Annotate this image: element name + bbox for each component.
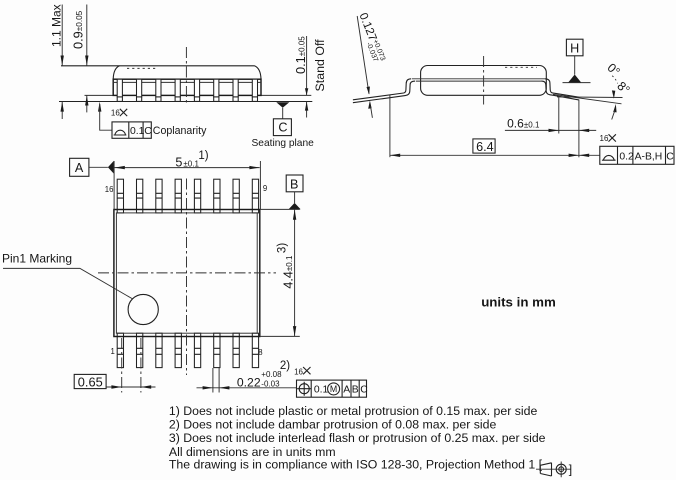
- svg-text:-0.03: -0.03: [261, 379, 280, 388]
- svg-text:6.4: 6.4: [476, 140, 494, 154]
- svg-text:B: B: [352, 385, 359, 396]
- svg-text:0.2: 0.2: [619, 151, 634, 162]
- svg-text:0.1: 0.1: [314, 385, 329, 396]
- svg-text:0.65: 0.65: [78, 374, 103, 389]
- svg-text:Stand Off: Stand Off: [313, 39, 327, 92]
- svg-text:A-B,H: A-B,H: [635, 151, 663, 162]
- svg-text:±0.1: ±0.1: [524, 120, 540, 129]
- svg-text:C: C: [360, 385, 368, 396]
- svg-text:The drawing is in compliance w: The drawing is in compliance with ISO 12…: [169, 458, 543, 472]
- svg-text:16: 16: [105, 185, 114, 194]
- svg-text:units in mm: units in mm: [481, 295, 556, 310]
- svg-text:1.1 Max: 1.1 Max: [50, 4, 64, 47]
- svg-text:16: 16: [294, 367, 303, 376]
- svg-text:1) Does not include plastic or: 1) Does not include plastic or metal pro…: [169, 404, 538, 418]
- svg-text:2): 2): [280, 360, 290, 372]
- svg-text:C: C: [278, 121, 287, 135]
- svg-text:9: 9: [263, 184, 267, 193]
- svg-text:B: B: [290, 178, 298, 192]
- svg-text:A: A: [75, 161, 84, 175]
- svg-text:1): 1): [198, 150, 208, 162]
- svg-text:1: 1: [111, 347, 115, 356]
- svg-text:]: ]: [569, 463, 572, 477]
- svg-text:H: H: [570, 41, 579, 55]
- svg-text:0.22: 0.22: [237, 375, 261, 389]
- svg-text:8: 8: [258, 348, 262, 357]
- svg-text:A: A: [343, 385, 350, 396]
- svg-text:0.6: 0.6: [507, 116, 524, 130]
- svg-text:5: 5: [175, 155, 182, 169]
- svg-text:Pin1 Marking: Pin1 Marking: [2, 251, 72, 265]
- svg-text:Seating plane: Seating plane: [252, 138, 315, 149]
- svg-text:0.1: 0.1: [130, 126, 145, 137]
- svg-text:Coplanarity: Coplanarity: [153, 125, 207, 137]
- svg-text:C: C: [144, 126, 152, 137]
- svg-text:3) Does not include interlead: 3) Does not include interlead flash or p…: [169, 431, 546, 445]
- svg-text:C: C: [666, 151, 674, 162]
- svg-text:±0.1: ±0.1: [183, 160, 199, 169]
- svg-text:M: M: [330, 384, 337, 394]
- svg-text:16: 16: [111, 109, 120, 118]
- svg-text:16: 16: [600, 134, 609, 143]
- svg-text:2) Does not include dambar pro: 2) Does not include dambar protrusion of…: [169, 418, 497, 432]
